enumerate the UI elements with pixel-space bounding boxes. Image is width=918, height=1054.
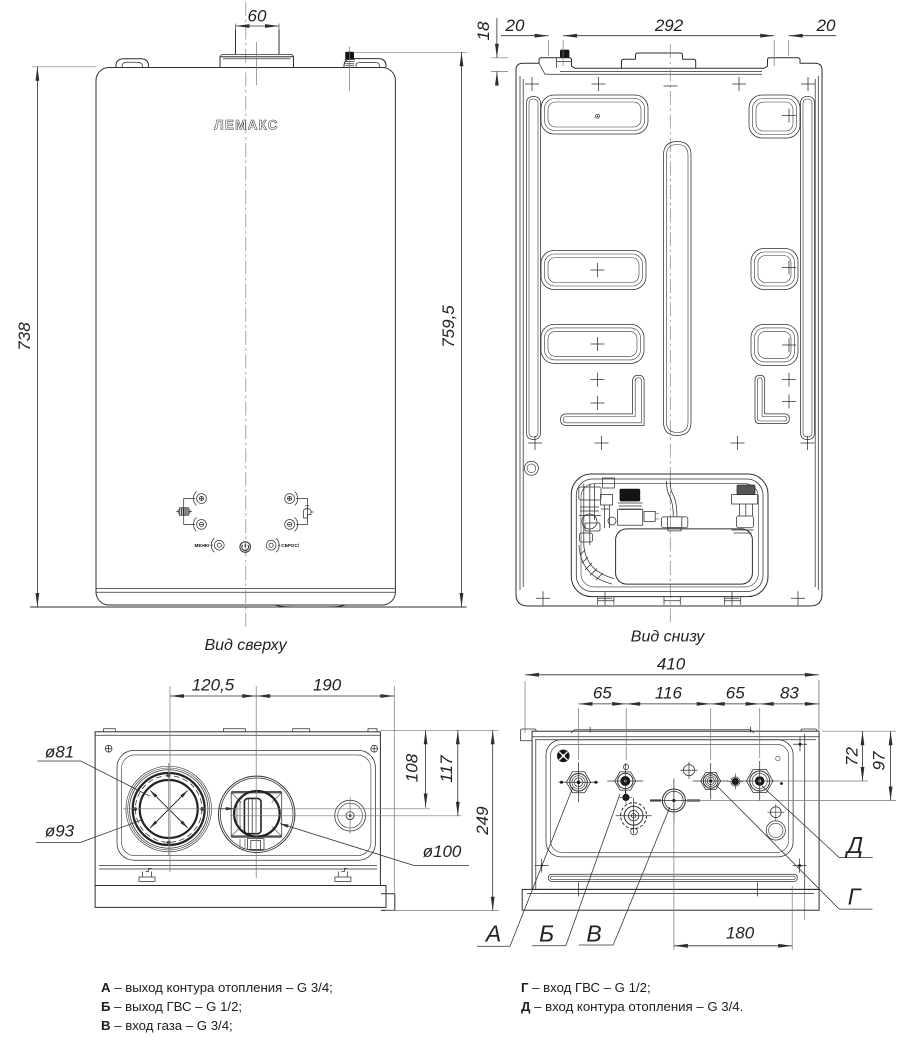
svg-text:СБРОС/: СБРОС/ bbox=[281, 543, 300, 548]
svg-text:20: 20 bbox=[816, 16, 836, 35]
svg-text:292: 292 bbox=[654, 16, 684, 35]
svg-text:60: 60 bbox=[248, 7, 267, 26]
svg-text:Б: Б bbox=[539, 921, 554, 947]
svg-text:108: 108 bbox=[403, 753, 422, 782]
svg-text:Вид сверху: Вид сверху bbox=[204, 637, 287, 654]
svg-text:ø100: ø100 bbox=[423, 842, 462, 861]
svg-text:249: 249 bbox=[473, 806, 492, 836]
svg-text:738: 738 bbox=[15, 322, 34, 351]
svg-text:18: 18 bbox=[474, 21, 493, 40]
svg-text:Д: Д bbox=[844, 832, 863, 858]
svg-text:ЛЕМАКС: ЛЕМАКС bbox=[214, 118, 278, 133]
svg-text:ø93: ø93 bbox=[45, 822, 75, 841]
svg-text:83: 83 bbox=[780, 684, 799, 703]
svg-text:А – выход контура отопления –: А – выход контура отопления – G 3/4; bbox=[101, 980, 333, 995]
svg-text:Д – вход контура отопления – G: Д – вход контура отопления – G 3/4. bbox=[521, 999, 743, 1014]
svg-text:Б – выход ГВС – G 1/2;: Б – выход ГВС – G 1/2; bbox=[101, 999, 242, 1014]
svg-text:117: 117 bbox=[437, 755, 456, 783]
svg-text:120,5: 120,5 bbox=[192, 676, 235, 695]
svg-text:Г – вход ГВС – G 1/2;: Г – вход ГВС – G 1/2; bbox=[521, 980, 651, 995]
svg-text:65: 65 bbox=[726, 684, 745, 703]
svg-text:180: 180 bbox=[726, 924, 755, 943]
svg-text:ø81: ø81 bbox=[45, 743, 74, 762]
svg-text:Г: Г bbox=[848, 883, 862, 909]
svg-text:97: 97 bbox=[870, 751, 889, 770]
svg-text:В – вход газа – G 3/4;: В – вход газа – G 3/4; bbox=[101, 1018, 233, 1033]
svg-text:А: А bbox=[484, 921, 501, 947]
svg-text:Вид снизу: Вид снизу bbox=[631, 629, 705, 646]
svg-text:190: 190 bbox=[313, 676, 342, 695]
svg-text:116: 116 bbox=[655, 684, 683, 703]
svg-text:410: 410 bbox=[657, 655, 686, 674]
svg-text:759,5: 759,5 bbox=[439, 305, 458, 348]
svg-text:72: 72 bbox=[843, 747, 862, 766]
svg-text:В: В bbox=[586, 921, 601, 947]
svg-text:МЕНЮ: МЕНЮ bbox=[195, 543, 210, 548]
svg-text:65: 65 bbox=[593, 684, 612, 703]
svg-text:20: 20 bbox=[505, 16, 525, 35]
